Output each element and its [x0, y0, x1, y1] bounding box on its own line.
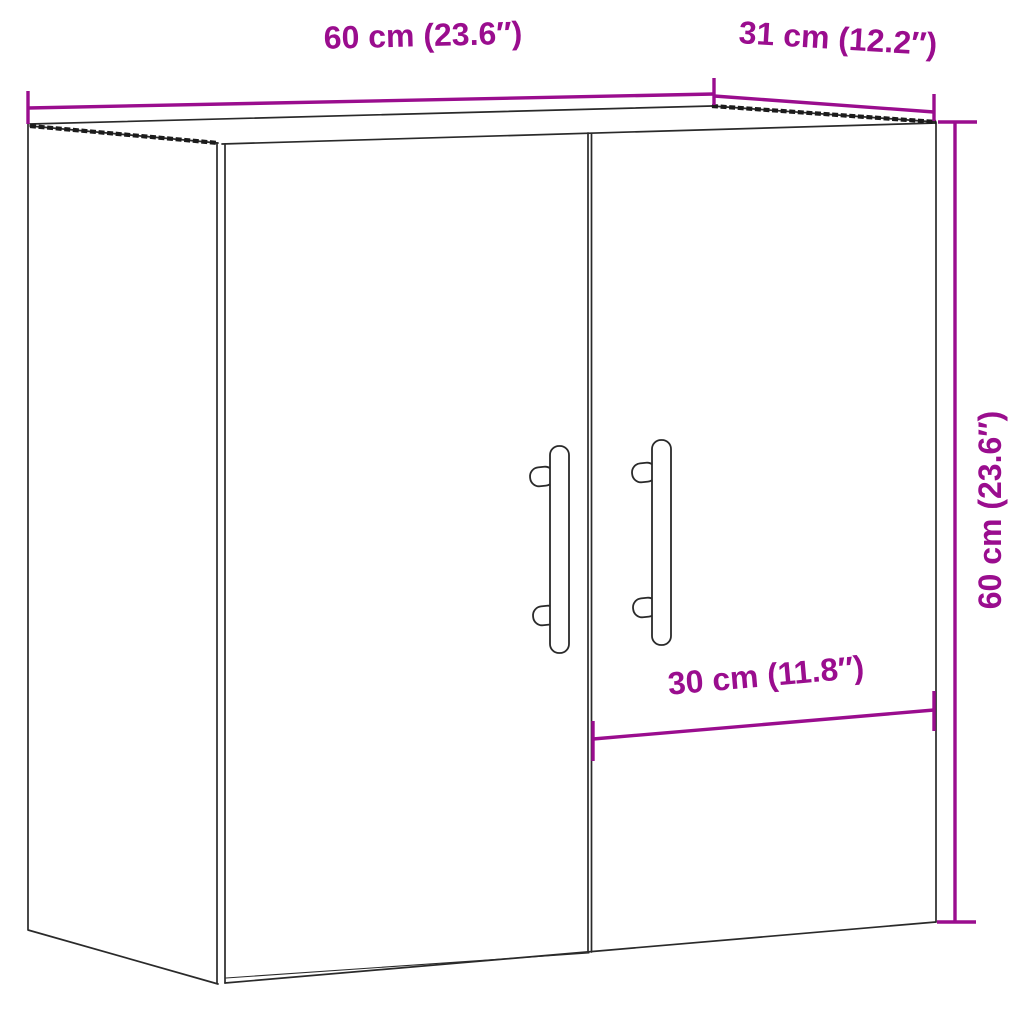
width-dimension-label: 60 cm (23.6″) [323, 17, 522, 56]
top-front-edge [222, 123, 936, 144]
top-back-edge [30, 106, 712, 124]
height-dimension-label: 60 cm (23.6″) [974, 411, 1008, 610]
right-handle-bar [652, 440, 671, 645]
bottom-front-edge [225, 922, 936, 983]
cabinet-outline [28, 106, 936, 984]
door-width-dimension-line [593, 710, 934, 739]
cabinet-line-art [0, 0, 1024, 1024]
product-dimension-diagram: 60 cm (23.6″) 31 cm (12.2″) 60 cm (23.6″… [0, 0, 1024, 1024]
left-door-bottom-edge [226, 953, 589, 978]
width-dimension-line [28, 94, 714, 108]
door-handles [529, 440, 671, 653]
dimension-lines [28, 78, 977, 922]
left-side-back-edge [28, 122, 218, 984]
left-handle-bar [550, 446, 569, 653]
